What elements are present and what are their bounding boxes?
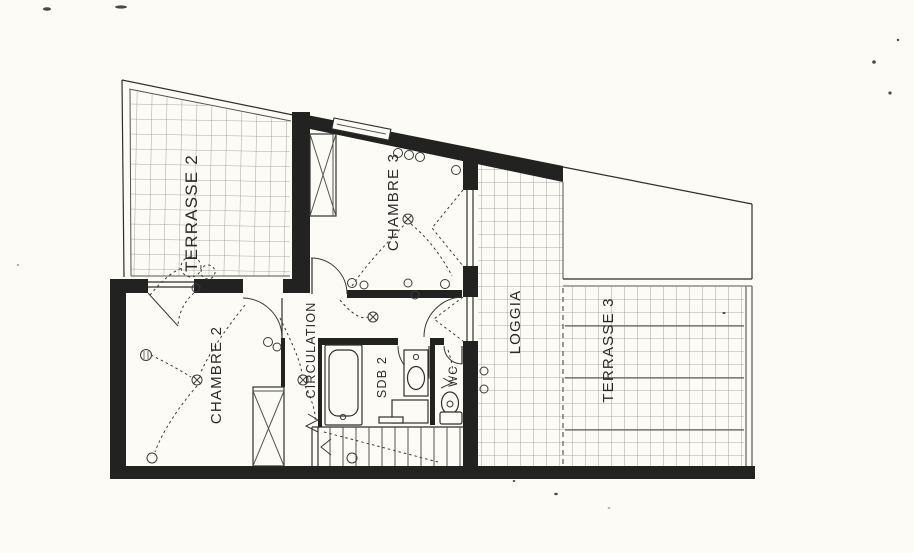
- window-swing-dashed-chambre3: [432, 190, 463, 266]
- wall-loggia-west-seg1: [463, 150, 478, 190]
- window-circulation-loggia: [467, 297, 473, 341]
- staircase-treads: [330, 427, 460, 466]
- ceiling-light-chambre3: [403, 214, 413, 224]
- door-arc-chambre3: [311, 258, 347, 294]
- door-arc-wc: [444, 346, 462, 364]
- terrasse-2-tiles: [131, 90, 290, 276]
- room-label-loggia: LOGGIA: [507, 290, 524, 355]
- room-label-terrasse-3: TERRASSE 3: [600, 297, 617, 402]
- wall-chambre3-south: [347, 290, 462, 298]
- room-label-terrasse-2: TERRASSE 2: [182, 154, 201, 272]
- window-terrasse2-chambre2: [148, 282, 194, 287]
- wall-wc-north: [430, 338, 444, 345]
- wall-south: [110, 466, 755, 479]
- wall-sdb2-north: [318, 338, 398, 345]
- scanned-floor-plan-page: TERRASSE 2 CHAMBRE 3 LOGGIA TERRASSE 3 C…: [0, 0, 914, 553]
- toilet: [440, 392, 462, 424]
- room-label-circulation: CIRCULATION: [304, 301, 318, 398]
- window-chambre3-loggia: [467, 190, 473, 266]
- wall-loggia-west-seg3: [463, 341, 478, 466]
- wall-sdb2-west: [318, 345, 322, 427]
- staircase: [312, 427, 463, 466]
- door-swing-dashed-terrasse2: [178, 293, 194, 326]
- room-label-sdb-2: SDB 2: [375, 356, 389, 398]
- roofline-sloped-edge: [563, 167, 752, 204]
- room-label-chambre-3: CHAMBRE 3: [385, 153, 402, 251]
- roof-void-outline: [563, 167, 752, 279]
- room-label-chambre-2: CHAMBRE 2: [208, 326, 225, 424]
- sink-vanity: [404, 350, 428, 396]
- door-arc-chambre2: [243, 298, 282, 338]
- staircase-left-edge: [312, 427, 318, 466]
- terrasse-3-area: [563, 279, 752, 466]
- wall-terrasse2-chambre3: [292, 112, 310, 293]
- wardrobe-chambre-2: [253, 387, 284, 466]
- door-arc-loggia: [424, 297, 462, 337]
- terrasse-2-inner-edge-left: [130, 90, 131, 276]
- ceiling-light-chambre2: [192, 375, 202, 385]
- supply-arrow-zigzag: [306, 414, 318, 432]
- bath-step: [379, 417, 403, 423]
- wall-west: [110, 279, 126, 479]
- wall-chambre2-east: [281, 338, 285, 387]
- wc-fixtures: [440, 392, 462, 424]
- bathtub: [325, 345, 362, 425]
- door-leaf-terrasse2: [148, 293, 178, 326]
- wall-wc-west: [430, 345, 435, 425]
- wardrobe-chambre-3: [310, 134, 336, 216]
- wall-terrasse2-south-seg3: [283, 279, 292, 293]
- window-swing-dashed-circulation: [434, 297, 463, 341]
- floor-plan-drawing: TERRASSE 2 CHAMBRE 3 LOGGIA TERRASSE 3 C…: [0, 0, 914, 553]
- wall-terrasse2-south-seg2: [194, 279, 243, 293]
- wall-loggia-west-seg2: [463, 266, 478, 297]
- room-label-wc: WC: [448, 365, 460, 387]
- terrasse-2-outer-edge-left: [122, 80, 124, 277]
- ceiling-light-circulation-2: [368, 312, 378, 322]
- terrasse-2-area: [122, 80, 293, 277]
- terrasse-3-tiles: [563, 287, 744, 466]
- wall-terrasse2-south-seg1: [126, 279, 148, 293]
